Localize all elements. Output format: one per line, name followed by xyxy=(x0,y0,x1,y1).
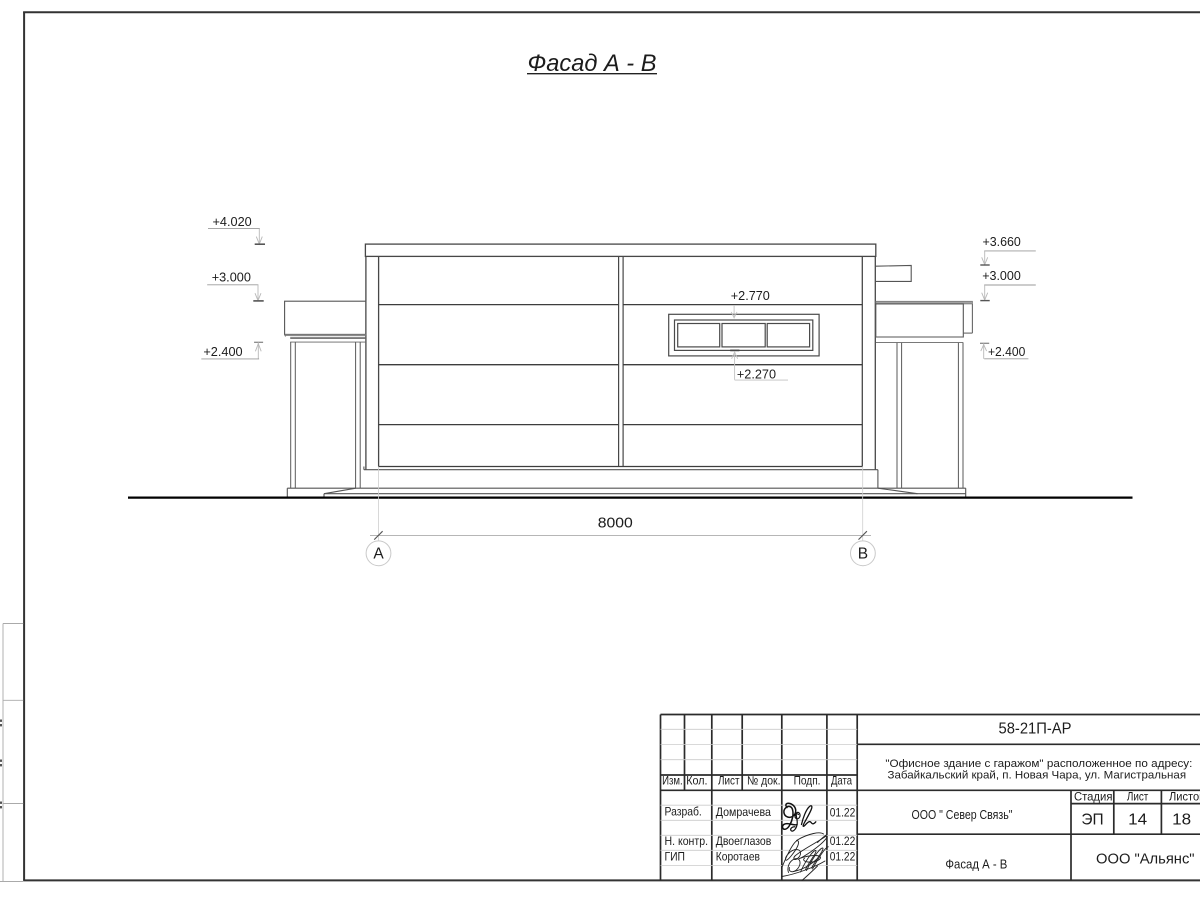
svg-text:ЭП: ЭП xyxy=(1081,811,1103,828)
svg-text:Домрачева: Домрачева xyxy=(716,805,771,819)
svg-text:ООО " Север Связь": ООО " Север Связь" xyxy=(912,808,1013,822)
svg-text:01.22: 01.22 xyxy=(830,834,856,848)
svg-text:58-21П-АР: 58-21П-АР xyxy=(999,721,1072,738)
svg-text:Подп.: Подп. xyxy=(794,774,821,788)
svg-text:01.22: 01.22 xyxy=(830,806,856,820)
svg-text:8000: 8000 xyxy=(598,515,633,532)
svg-text:"Офисное здание с гаражом" рас: "Офисное здание с гаражом" расположенное… xyxy=(885,758,1192,770)
svg-text:Двоеглазов: Двоеглазов xyxy=(716,834,772,848)
svg-text:+3.660: +3.660 xyxy=(983,234,1021,249)
svg-text:Забайкальский край, п. Новая Ч: Забайкальский край, п. Новая Чара, ул. М… xyxy=(888,769,1187,781)
svg-text:Фасад А - В: Фасад А - В xyxy=(945,856,1007,871)
svg-text:А: А xyxy=(373,546,384,563)
svg-text:ГИП: ГИП xyxy=(665,850,686,864)
svg-text:14: 14 xyxy=(1128,811,1147,828)
svg-text:Разраб.: Разраб. xyxy=(665,805,702,819)
svg-text:+4.020: +4.020 xyxy=(213,214,252,229)
svg-text:+2.400: +2.400 xyxy=(203,344,242,359)
svg-text:+3.000: +3.000 xyxy=(982,268,1021,283)
svg-text:+2.400: +2.400 xyxy=(988,344,1025,359)
svg-text:Лист: Лист xyxy=(718,774,740,788)
svg-text:01.22: 01.22 xyxy=(830,850,856,864)
svg-text:+2.770: +2.770 xyxy=(731,288,770,303)
svg-text:+3.000: +3.000 xyxy=(212,270,251,285)
svg-text:Дата: Дата xyxy=(831,774,852,788)
svg-text:Фасад А - В: Фасад А - В xyxy=(528,50,657,77)
svg-text:+2.270: +2.270 xyxy=(737,367,776,382)
svg-text:Коротаев: Коротаев xyxy=(716,850,760,864)
svg-text:Лист: Лист xyxy=(1127,790,1149,804)
svg-text:ООО "Альянс": ООО "Альянс" xyxy=(1096,850,1195,867)
svg-text:№ док.: № док. xyxy=(747,774,781,788)
svg-text:Кол.: Кол. xyxy=(686,774,707,788)
svg-text:18: 18 xyxy=(1172,811,1191,828)
svg-text:Н. контр.: Н. контр. xyxy=(665,834,709,848)
svg-text:Изм.: Изм. xyxy=(662,774,683,788)
svg-text:Стадия: Стадия xyxy=(1074,790,1113,804)
svg-text:В: В xyxy=(858,546,868,563)
svg-text:Листов: Листов xyxy=(1169,790,1200,804)
